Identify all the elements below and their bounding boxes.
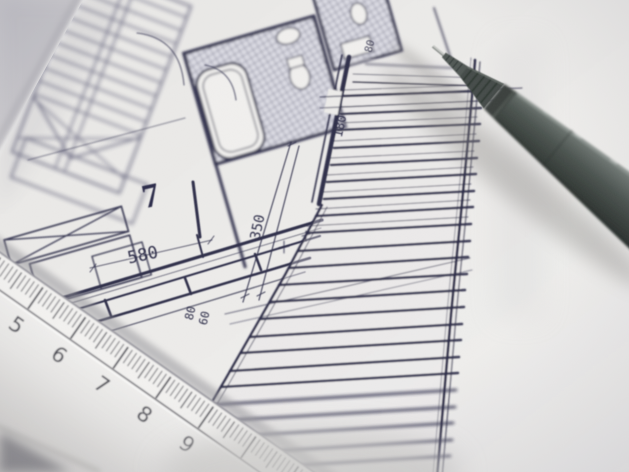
blueprint-photo: 7 580 350 80 60 180 80 5 6 7 8 9: [0, 0, 629, 472]
photo-canvas: 7 580 350 80 60 180 80 5 6 7 8 9: [0, 0, 629, 472]
film-grain: [0, 0, 629, 472]
